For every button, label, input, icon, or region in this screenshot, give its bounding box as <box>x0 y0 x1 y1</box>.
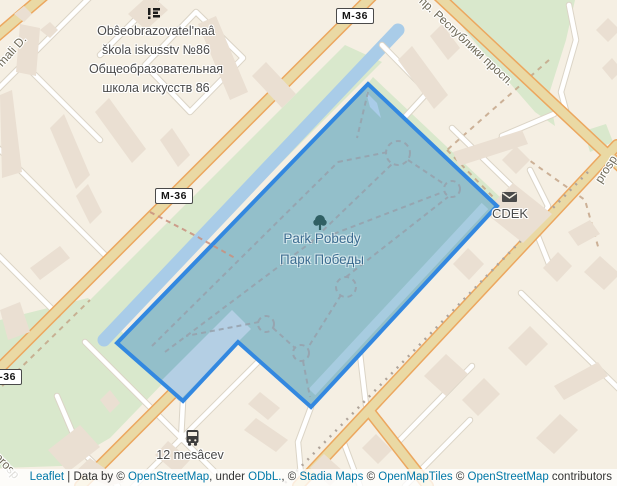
openstreetmap-link[interactable]: OpenStreetMap <box>128 471 209 483</box>
leaflet-link[interactable]: Leaflet <box>30 471 65 483</box>
openmaptiles-link[interactable]: OpenMapTiles <box>378 471 452 483</box>
leaflet-map[interactable]: Obŝeobrazovatel'naâ škola iskusstv №86 О… <box>0 0 617 486</box>
attribution-text: , © <box>281 471 299 483</box>
map-canvas[interactable] <box>0 0 617 486</box>
openstreetmap-contributors-link[interactable]: OpenStreetMap <box>468 471 549 483</box>
road-shield-m36-left: M-36 <box>0 369 22 385</box>
stadia-maps-link[interactable]: Stadia Maps <box>299 471 363 483</box>
attribution-bar: Leaflet | Data by © OpenStreetMap, under… <box>0 469 617 486</box>
road-shield-m36-mid: M-36 <box>155 188 193 204</box>
attribution-text: , under <box>209 471 248 483</box>
attribution-text: | Data by © <box>64 471 128 483</box>
odbl-link[interactable]: ODbL. <box>248 471 281 483</box>
attribution-text: © <box>453 471 468 483</box>
attribution-text: © <box>363 471 378 483</box>
attribution-text: contributors <box>549 471 612 483</box>
road-shield-m36-top: M-36 <box>336 8 374 24</box>
